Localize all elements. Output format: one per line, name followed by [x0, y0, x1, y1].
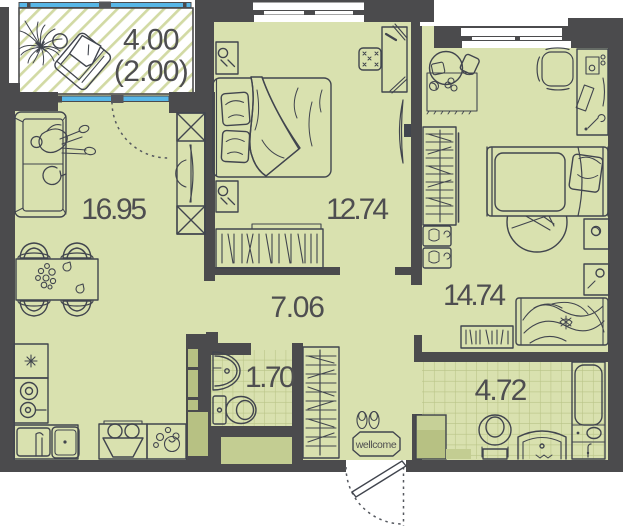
svg-text:16.95: 16.95 — [81, 193, 146, 226]
svg-text:4.00: 4.00 — [123, 24, 179, 57]
svg-text:1.70: 1.70 — [245, 361, 295, 394]
svg-text:4.72: 4.72 — [475, 374, 527, 407]
svg-text:7.06: 7.06 — [270, 291, 324, 324]
svg-text:12.74: 12.74 — [326, 193, 388, 226]
svg-text:wellcome: wellcome — [355, 439, 397, 451]
svg-text:(2.00): (2.00) — [114, 55, 188, 88]
svg-text:14.74: 14.74 — [443, 279, 505, 312]
